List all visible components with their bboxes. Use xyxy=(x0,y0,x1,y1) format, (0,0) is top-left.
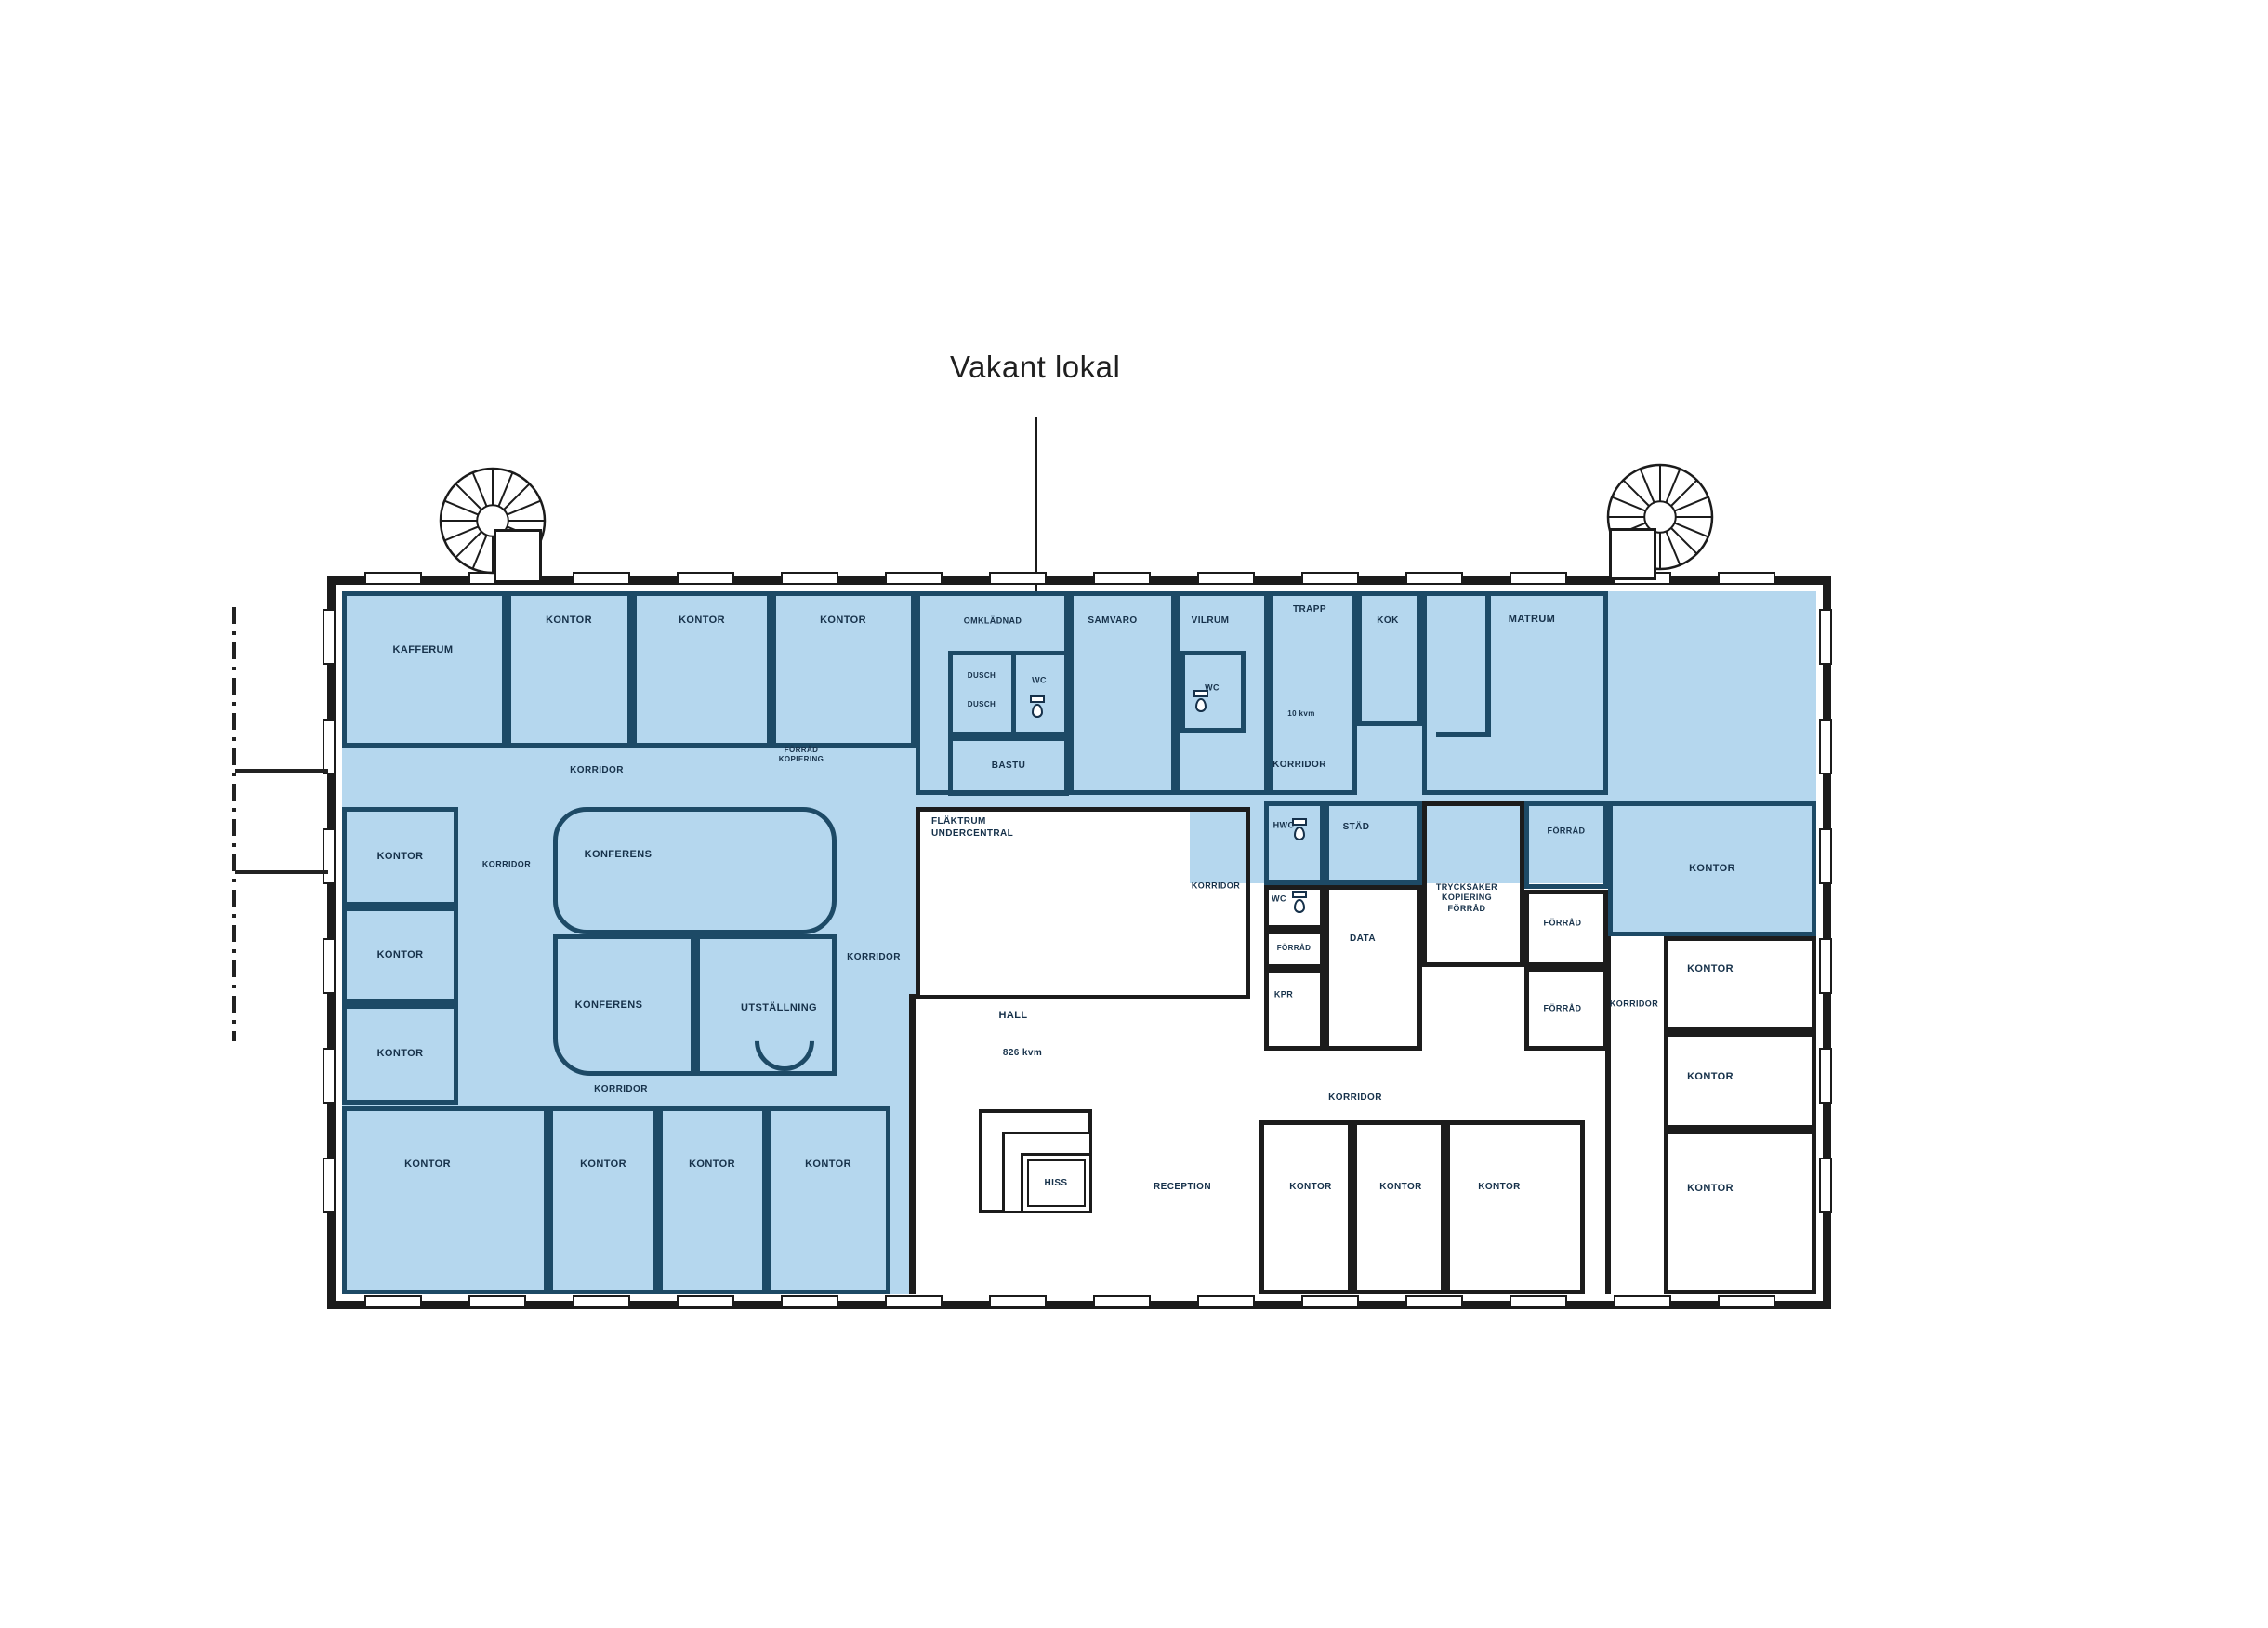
room-label-kontor: KONTOR xyxy=(805,1158,851,1171)
window xyxy=(323,938,336,994)
window xyxy=(885,572,943,585)
room-kontor xyxy=(342,1106,548,1294)
window xyxy=(323,719,336,774)
room-label-kontor: KONTOR xyxy=(1689,863,1735,876)
window xyxy=(1197,572,1255,585)
window xyxy=(1819,828,1832,884)
toilet-icon xyxy=(1193,690,1208,714)
room-label-kontor: KONTOR xyxy=(1687,963,1734,976)
window xyxy=(1197,1295,1255,1308)
room-kontor xyxy=(767,1106,890,1294)
window xyxy=(323,1048,336,1104)
window xyxy=(1718,572,1775,585)
window xyxy=(1614,1295,1671,1308)
room-label-kafferum: KAFFERUM xyxy=(393,644,454,657)
room-label-kontor: KONTOR xyxy=(820,615,866,628)
room-label-hwc: HWC xyxy=(1273,820,1295,830)
toilet-bowl xyxy=(1032,704,1043,718)
property-line xyxy=(232,607,236,1041)
room-label-k-k: KÖK xyxy=(1377,615,1398,628)
room-label-bastu: BASTU xyxy=(992,761,1025,773)
room-f-rr-d xyxy=(1524,801,1608,889)
window xyxy=(989,572,1047,585)
window xyxy=(1510,572,1567,585)
room-label-kpr: KPR xyxy=(1274,989,1293,999)
room-label-f-rr-d: FÖRRÅD xyxy=(1277,944,1312,953)
room-label-trapp: TRAPP xyxy=(1293,604,1326,616)
room-label-vilrum: VILRUM xyxy=(1192,615,1230,628)
label-reception: RECEPTION xyxy=(1154,1182,1211,1194)
toilet-icon xyxy=(1030,695,1045,720)
window xyxy=(1718,1295,1775,1308)
room-label-hiss: HISS xyxy=(1045,1178,1068,1190)
label-korridor: KORRIDOR xyxy=(1272,760,1326,772)
toilet-tank xyxy=(1030,695,1045,703)
stair-landing xyxy=(494,529,542,583)
window xyxy=(1301,1295,1359,1308)
label-f-rr-d: FÖRRÅD KOPIERING xyxy=(779,746,824,764)
room-label-wc: WC xyxy=(1032,675,1047,685)
window xyxy=(1819,938,1832,994)
room-label-kontor: KONTOR xyxy=(1478,1182,1521,1194)
room-label-kontor: KONTOR xyxy=(1687,1071,1734,1084)
room-label-matrum: MATRUM xyxy=(1509,614,1555,627)
room-label-kontor: KONTOR xyxy=(377,949,424,962)
window xyxy=(1819,1158,1832,1213)
window xyxy=(1093,1295,1151,1308)
window xyxy=(364,1295,422,1308)
window xyxy=(364,572,422,585)
stair-landing xyxy=(1609,528,1656,580)
label-hall: HALL xyxy=(999,1010,1028,1023)
label-826-kvm: 826 kvm xyxy=(1003,1048,1042,1060)
room-label-kontor: KONTOR xyxy=(689,1158,735,1171)
toilet-icon xyxy=(1292,891,1307,915)
label-korridor: KORRIDOR xyxy=(1328,1092,1382,1105)
window xyxy=(1405,1295,1463,1308)
label-korridor: KORRIDOR xyxy=(482,859,531,869)
window xyxy=(781,1295,838,1308)
room-kontor xyxy=(1352,1120,1445,1294)
vacant-annotation-title: Vakant lokal xyxy=(950,350,1120,385)
toilet-bowl xyxy=(1294,827,1305,840)
label-korridor: KORRIDOR xyxy=(570,765,624,777)
window xyxy=(573,572,630,585)
room-k-k xyxy=(1357,591,1422,726)
window xyxy=(1405,572,1463,585)
toilet-bowl xyxy=(1195,698,1207,712)
window xyxy=(989,1295,1047,1308)
room-label-f-rr-d: FÖRRÅD xyxy=(1544,918,1582,928)
room-label-kontor: KONTOR xyxy=(377,851,424,864)
room-label-kontor: KONTOR xyxy=(679,615,725,628)
toilet-bowl xyxy=(1294,899,1305,913)
window xyxy=(323,1158,336,1213)
window xyxy=(573,1295,630,1308)
room-label-omkl-dnad: OMKLÄDNAD xyxy=(964,615,1022,626)
room-wc xyxy=(1011,651,1069,736)
room-label-kontor: KONTOR xyxy=(1379,1182,1422,1194)
room-hwc xyxy=(1264,801,1325,885)
room-label-kontor: KONTOR xyxy=(580,1158,626,1171)
room-label-data: DATA xyxy=(1350,933,1376,946)
room-kafferum xyxy=(342,591,507,748)
toilet-tank xyxy=(1292,891,1307,898)
property-line-tick xyxy=(235,769,328,773)
room-kontor xyxy=(1664,936,1816,1032)
label-korridor: KORRIDOR xyxy=(594,1084,648,1096)
room-label-konferens: KONFERENS xyxy=(575,999,643,1013)
window xyxy=(1510,1295,1567,1308)
room-label-st-d: STÄD xyxy=(1343,822,1370,834)
room-label-f-rr-d: FÖRRÅD xyxy=(1548,826,1586,836)
label-trycksaker: TRYCKSAKER KOPIERING FÖRRÅD xyxy=(1436,882,1497,914)
window xyxy=(781,572,838,585)
room-kontor xyxy=(1664,1130,1816,1294)
window xyxy=(323,828,336,884)
room-konferens xyxy=(553,807,837,934)
window xyxy=(323,609,336,665)
room-kontor xyxy=(658,1106,767,1294)
label-10-kvm: 10 kvm xyxy=(1287,709,1315,719)
room-st-d xyxy=(1325,801,1422,885)
room-label-samvaro: SAMVARO xyxy=(1088,615,1137,628)
window xyxy=(885,1295,943,1308)
label-dusch: DUSCH xyxy=(968,671,996,681)
window xyxy=(677,572,734,585)
window xyxy=(1819,719,1832,774)
toilet-tank xyxy=(1193,690,1208,697)
label-dusch: DUSCH xyxy=(968,700,996,709)
room-label-kontor: KONTOR xyxy=(546,615,592,628)
window xyxy=(1301,572,1359,585)
room-label-f-rr-d: FÖRRÅD xyxy=(1544,1003,1582,1013)
window xyxy=(1093,572,1151,585)
label-korridor: KORRIDOR xyxy=(1610,999,1658,1009)
room-kontor xyxy=(1445,1120,1585,1294)
label-korridor: KORRIDOR xyxy=(1192,880,1240,891)
room-kontor xyxy=(548,1106,658,1294)
property-line-tick xyxy=(235,870,328,874)
window xyxy=(677,1295,734,1308)
window xyxy=(1819,609,1832,665)
label-korridor: KORRIDOR xyxy=(847,952,901,964)
room-label-kontor: KONTOR xyxy=(377,1048,424,1061)
window xyxy=(468,1295,526,1308)
room-kontor xyxy=(1259,1120,1352,1294)
room-label-kontor: KONTOR xyxy=(1687,1183,1734,1196)
room-label-konferens: KONFERENS xyxy=(585,849,653,862)
room-data xyxy=(1325,885,1422,1051)
label-fl-ktrum: FLÄKTRUM UNDERCENTRAL xyxy=(931,816,1013,840)
wall-segment xyxy=(909,994,916,1294)
room-label-wc: WC xyxy=(1272,893,1286,904)
room-label-kontor: KONTOR xyxy=(1289,1182,1332,1194)
window xyxy=(1819,1048,1832,1104)
floor-plan-canvas: Vakant lokal KAFFERUMKONTORKONTORKONTORK… xyxy=(0,0,2268,1628)
toilet-tank xyxy=(1292,818,1307,826)
room-kpr xyxy=(1264,969,1325,1051)
toilet-icon xyxy=(1292,818,1307,842)
room-label-kontor: KONTOR xyxy=(404,1158,451,1171)
